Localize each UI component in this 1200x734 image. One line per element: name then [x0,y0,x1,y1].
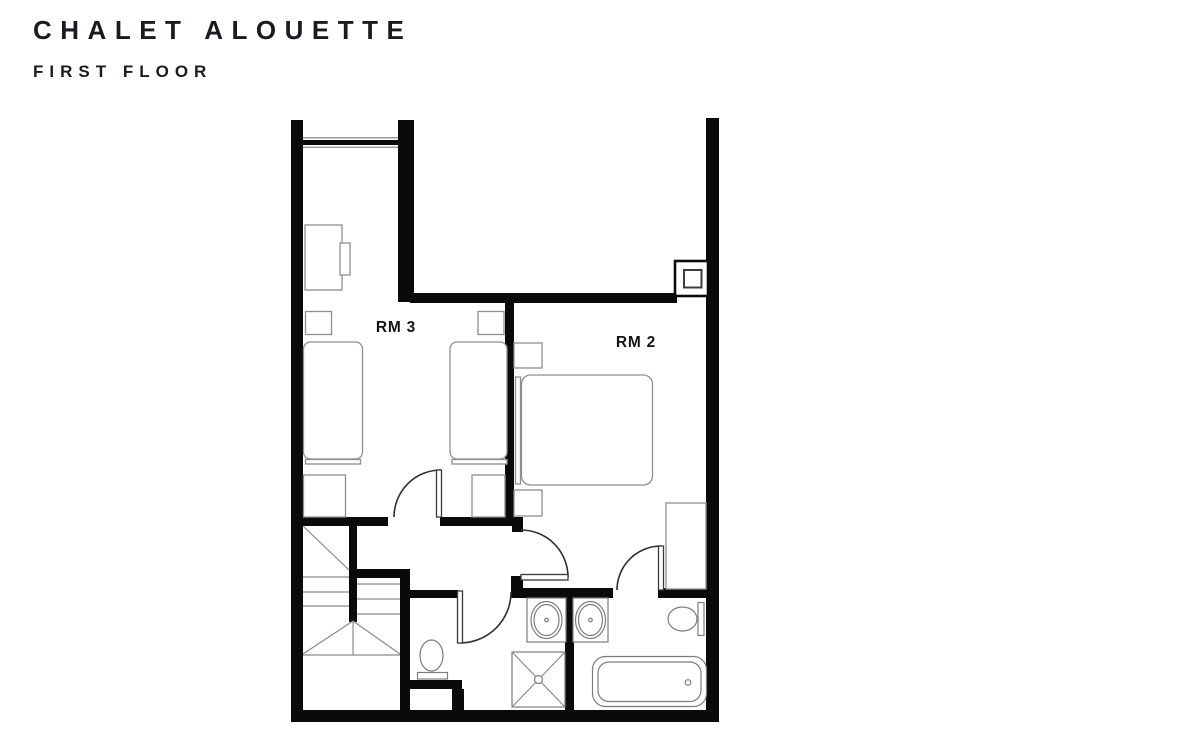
window [303,137,398,148]
nightstand [514,343,542,368]
stair-winder-left [303,621,353,654]
wall-rm3-south-west [291,517,388,526]
chimney-inner-box [684,270,702,288]
door-rm2 [521,530,568,580]
room-label-rm2: RM 2 [616,334,656,351]
double-bed-mattress [522,375,653,485]
floor-plan-drawing: RM 3 RM 2 [0,0,1200,734]
wall-bottom [291,710,719,722]
door-swing-arc [521,530,568,577]
stair-winder-right [353,621,400,654]
sink [573,598,608,642]
door-rm3 [394,470,442,517]
nightstand [306,312,332,335]
wall-rm3-south-east [440,517,514,526]
sink [527,598,566,642]
double-bed-headboard [516,377,521,484]
door-leaf [458,591,463,643]
door-ensuite [617,546,664,590]
wall-left [291,120,303,722]
toilet-bowl [420,640,443,671]
stair-break-line [303,526,349,570]
wall-rm3-northeast [398,120,414,302]
window-sill-line [303,147,398,148]
twin-bed-mattress [304,342,363,459]
wall-stair-mid-horizontal [352,569,410,578]
door-leaf [437,470,442,517]
wall-wc-south [405,680,462,689]
window-frame [303,140,398,145]
desk-chair [340,243,350,275]
floor-plan-page: CHALET ALOUETTE FIRST FLOOR [0,0,1200,734]
toilet-base [418,673,448,680]
door-leaf [659,546,664,590]
wardrobe [666,503,706,589]
room-label-rm3: RM 3 [376,319,416,336]
toilet [418,640,448,679]
window-sill-line [303,137,398,138]
wall-wc-north [405,590,458,598]
shower [512,652,565,707]
nightstand [478,312,504,335]
rm2-furniture [514,343,706,589]
twin-bed-footboard [306,460,361,465]
wall-bath-north-a [511,588,613,598]
door-swing-arc [617,546,661,590]
sink-drain [589,618,593,622]
sink-drain [545,618,549,622]
toilet [668,603,704,636]
door-family-bathroom [458,591,512,643]
twin-bed-footboard [452,460,507,465]
chimney-flue [675,261,708,296]
bathtub-drain [685,680,691,686]
door-swing-arc [394,470,441,517]
wardrobe [472,475,505,517]
door-swing-arc [460,592,511,643]
toilet-bowl [668,607,697,631]
twin-bed-mattress [450,342,507,459]
desk [305,225,342,290]
wall-rm2-north [410,293,677,303]
door-leaf [521,575,568,581]
wall-right [706,118,719,716]
wardrobe [304,475,346,517]
nightstand [514,490,542,516]
shower-drain [535,676,543,684]
bathtub [593,657,707,707]
wall-wc-step [452,689,464,710]
toilet-cistern [698,603,704,636]
